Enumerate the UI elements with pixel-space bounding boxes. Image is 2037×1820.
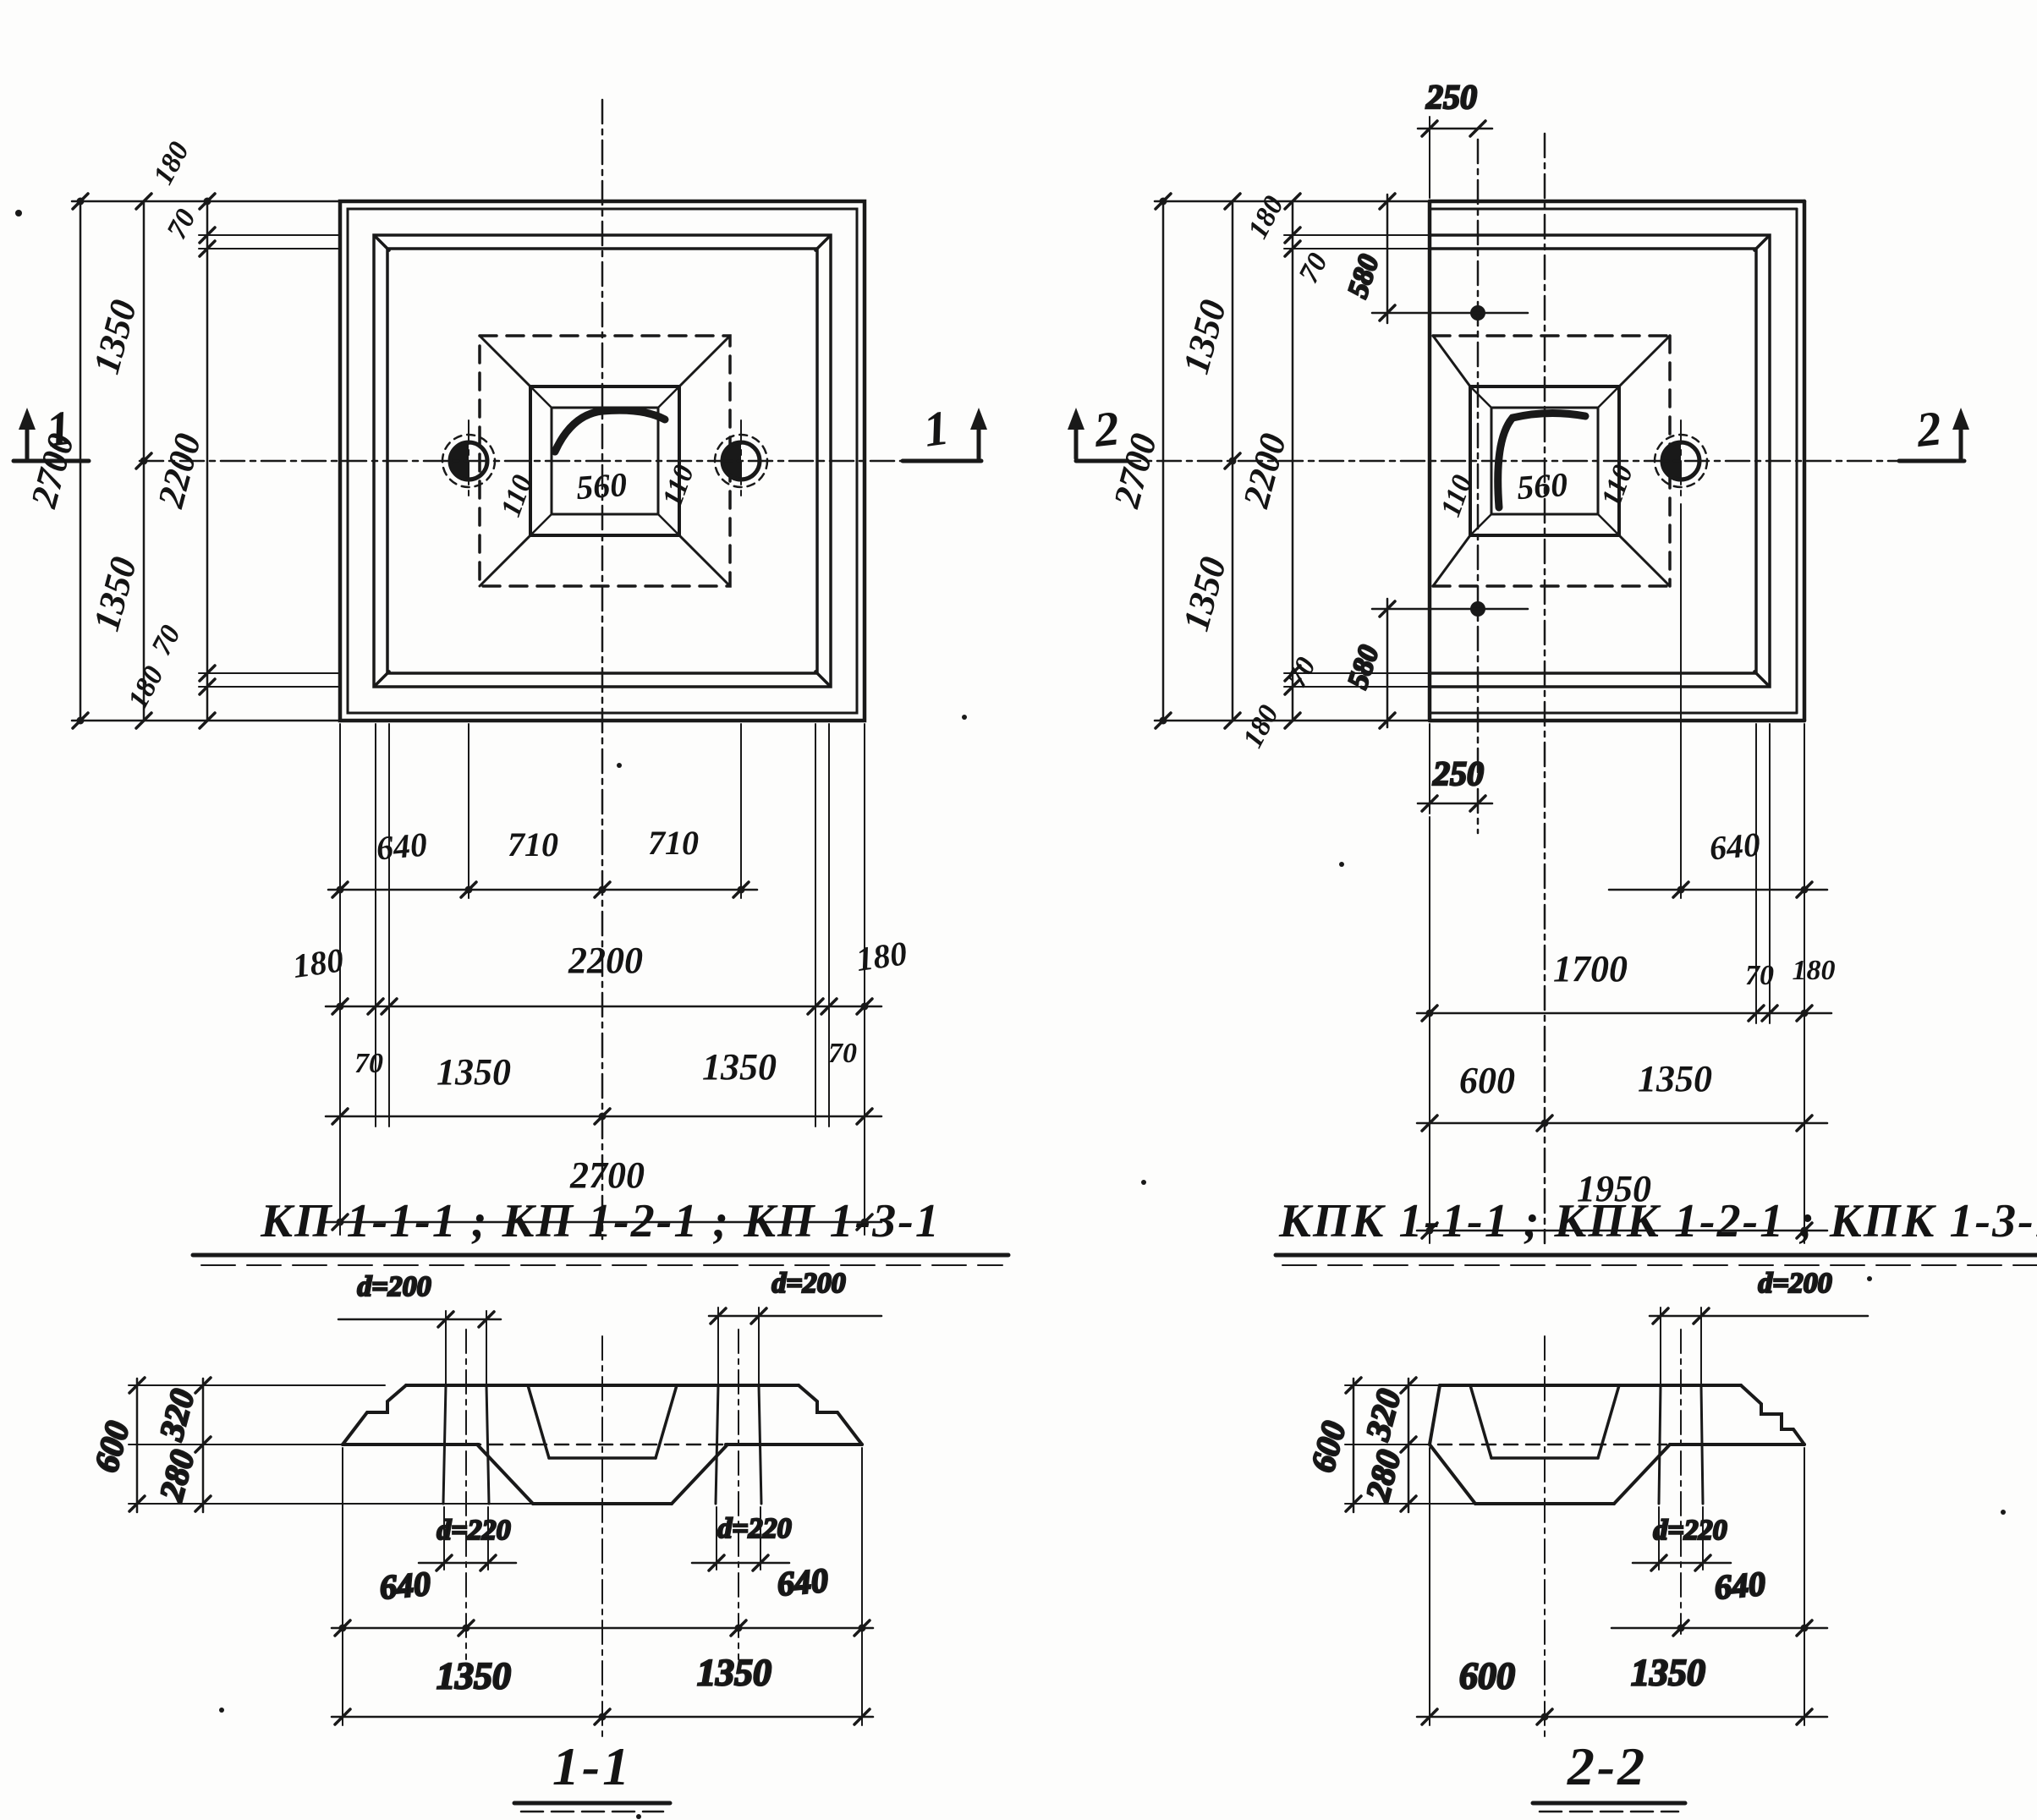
socket-right-offset: 110 — [656, 461, 700, 511]
dim-710-right: 710 — [648, 824, 699, 862]
dim-step-bottom: 70 — [145, 620, 187, 660]
dim-step-top: 70 — [161, 204, 202, 244]
plan-kpk-dim-250-top: 250 — [1418, 78, 1492, 198]
dim-1350-left: 1350 — [436, 1051, 511, 1093]
dim-top-half: 1350 — [1175, 295, 1234, 378]
dim-640: 640 — [1708, 825, 1762, 868]
dim-280: 280 — [1358, 1446, 1408, 1506]
dim-640-right: 640 — [776, 1561, 830, 1603]
dim-600: 600 — [1459, 1655, 1515, 1697]
dim-d200-left: d=200 — [357, 1271, 431, 1302]
section-1-1-d220-right: d=220 — [692, 1507, 792, 1571]
dim-640: 640 — [375, 825, 429, 868]
plan-kp: 560 110 110 1 1 — [14, 100, 987, 1239]
section-mark-2-left: 2 — [1091, 400, 1123, 458]
section-mark-2-right: 2 — [1913, 400, 1945, 458]
titles: КП 1-1-1 ; КП 1-2-1 ; КП 1-3-1 КПК 1-1-1… — [193, 1195, 2037, 1265]
plan-kpk-dim-580-bottom: 580 — [1342, 599, 1528, 728]
dim-d220: d=220 — [1653, 1515, 1727, 1546]
dim-600-height: 600 — [86, 1417, 136, 1477]
section-2-2-d200: d=200 — [1650, 1268, 1868, 1384]
title-kp: КП 1-1-1 ; КП 1-2-1 ; КП 1-3-1 — [260, 1195, 941, 1247]
socket-ink-smudge — [555, 410, 665, 452]
dim-250-bottom: 250 — [1432, 754, 1484, 792]
dim-320: 320 — [1358, 1385, 1408, 1445]
dim-inner-2200: 2200 — [150, 429, 209, 513]
plan-kpk-left-dim-labels: 2700 1350 1350 2200 180 70 70 180 — [1106, 191, 1334, 753]
plan-kp-left-dims — [72, 194, 340, 728]
dim-top-half: 1350 — [85, 295, 145, 378]
section-1-1-title: 1-1 — [514, 1736, 670, 1812]
dim-1350-right: 1350 — [697, 1652, 771, 1693]
dim-edge-top: 180 — [147, 137, 195, 189]
section-2-2: d=200 d=220 600 320 280 640 600 1350 — [1303, 1268, 1868, 1812]
dim-600: 600 — [1459, 1060, 1515, 1101]
dim-710-left: 710 — [508, 825, 558, 863]
dim-edge-bottom: 180 — [122, 661, 170, 714]
dim-600-height: 600 — [1303, 1417, 1353, 1477]
plan-kpk-section-marks: 2 2 — [1068, 400, 1969, 461]
dim-d220-left: d=220 — [436, 1515, 510, 1546]
dim-180: 180 — [1793, 955, 1836, 986]
section-2-2-d220: d=220 — [1633, 1507, 1731, 1571]
dim-2200-bottom: 2200 — [568, 940, 643, 981]
section-mark-1-right: 1 — [920, 399, 953, 457]
dim-d200-right: d=200 — [771, 1268, 845, 1299]
dim-580-top: 580 — [1342, 251, 1386, 302]
foundation-drawing: 560 110 110 1 1 — [0, 0, 2037, 1820]
dim-edge-bottom: 180 — [1237, 700, 1285, 753]
plan-kp-section-marks: 1 1 — [14, 399, 987, 461]
plan-kpk-dim-250-bottom: 250 — [1418, 724, 1492, 814]
plan-kpk-bottom-dim-labels: 640 1700 70 180 600 1350 1950 — [1459, 825, 1836, 1209]
dim-70-left: 70 — [354, 1048, 383, 1079]
title-kpk: КПК 1-1-1 ; КПК 1-2-1 ; КПК 1-3-1 — [1278, 1195, 2037, 1247]
dim-250-top: 250 — [1425, 78, 1477, 116]
section-1-1-d200-right: d=200 — [709, 1268, 881, 1384]
dim-inner-2200: 2200 — [1235, 429, 1294, 513]
section-2-2-title: 2-2 — [1533, 1736, 1685, 1812]
photocopy-specks — [15, 210, 2006, 1819]
dim-1350-left: 1350 — [436, 1655, 511, 1697]
section-2-2-bottom-dims: 640 600 1350 — [1417, 1448, 1827, 1725]
dim-1700: 1700 — [1553, 948, 1628, 989]
dim-1350: 1350 — [1631, 1652, 1705, 1693]
socket-left-offset: 110 — [1435, 471, 1479, 521]
plan-kp-bottom-dim-labels: 640 710 710 180 2200 180 70 70 1350 1350… — [290, 824, 909, 1196]
plan-kpk-extension-lines — [1430, 504, 1804, 1243]
dim-edge-top: 180 — [1242, 191, 1290, 244]
dim-640-left: 640 — [378, 1565, 432, 1607]
section-title: 1-1 — [552, 1736, 632, 1796]
dim-step-top: 70 — [1293, 248, 1334, 288]
dim-280: 280 — [151, 1446, 201, 1506]
section-1-1: d=200 d=200 d=220 d=220 600 320 280 — [86, 1268, 881, 1812]
dim-d200: d=200 — [1758, 1268, 1831, 1299]
dim-1350: 1350 — [1638, 1058, 1712, 1099]
socket-size-label: 560 — [1516, 465, 1569, 507]
dim-bottom-half: 1350 — [1175, 552, 1234, 635]
dim-bottom-half: 1350 — [85, 552, 145, 635]
dim-320: 320 — [151, 1385, 201, 1445]
dim-640: 640 — [1713, 1565, 1767, 1607]
section-1-1-d220-left: d=220 — [419, 1507, 516, 1571]
dim-180-right: 180 — [854, 934, 909, 979]
dim-70-right: 70 — [828, 1038, 857, 1069]
drawing-sheet: 560 110 110 1 1 — [0, 0, 2037, 1820]
socket-right-offset: 110 — [1595, 461, 1639, 511]
dim-d220-right: d=220 — [717, 1513, 791, 1544]
plan-kpk: 560 110 110 2 2 250 250 — [1068, 78, 1969, 1243]
dim-1350-right: 1350 — [702, 1046, 777, 1088]
section-1-1-d200-left: d=200 — [338, 1271, 501, 1384]
dim-2700-bottom: 2700 — [569, 1154, 645, 1196]
dim-70: 70 — [1745, 960, 1774, 991]
dim-180-left: 180 — [290, 940, 346, 985]
socket-left-offset: 110 — [495, 471, 539, 521]
section-title: 2-2 — [1567, 1736, 1647, 1796]
plan-kpk-dim-580-top: 580 — [1342, 194, 1528, 323]
dim-total-height: 2700 — [23, 429, 82, 513]
dim-580-bottom: 580 — [1342, 642, 1386, 693]
